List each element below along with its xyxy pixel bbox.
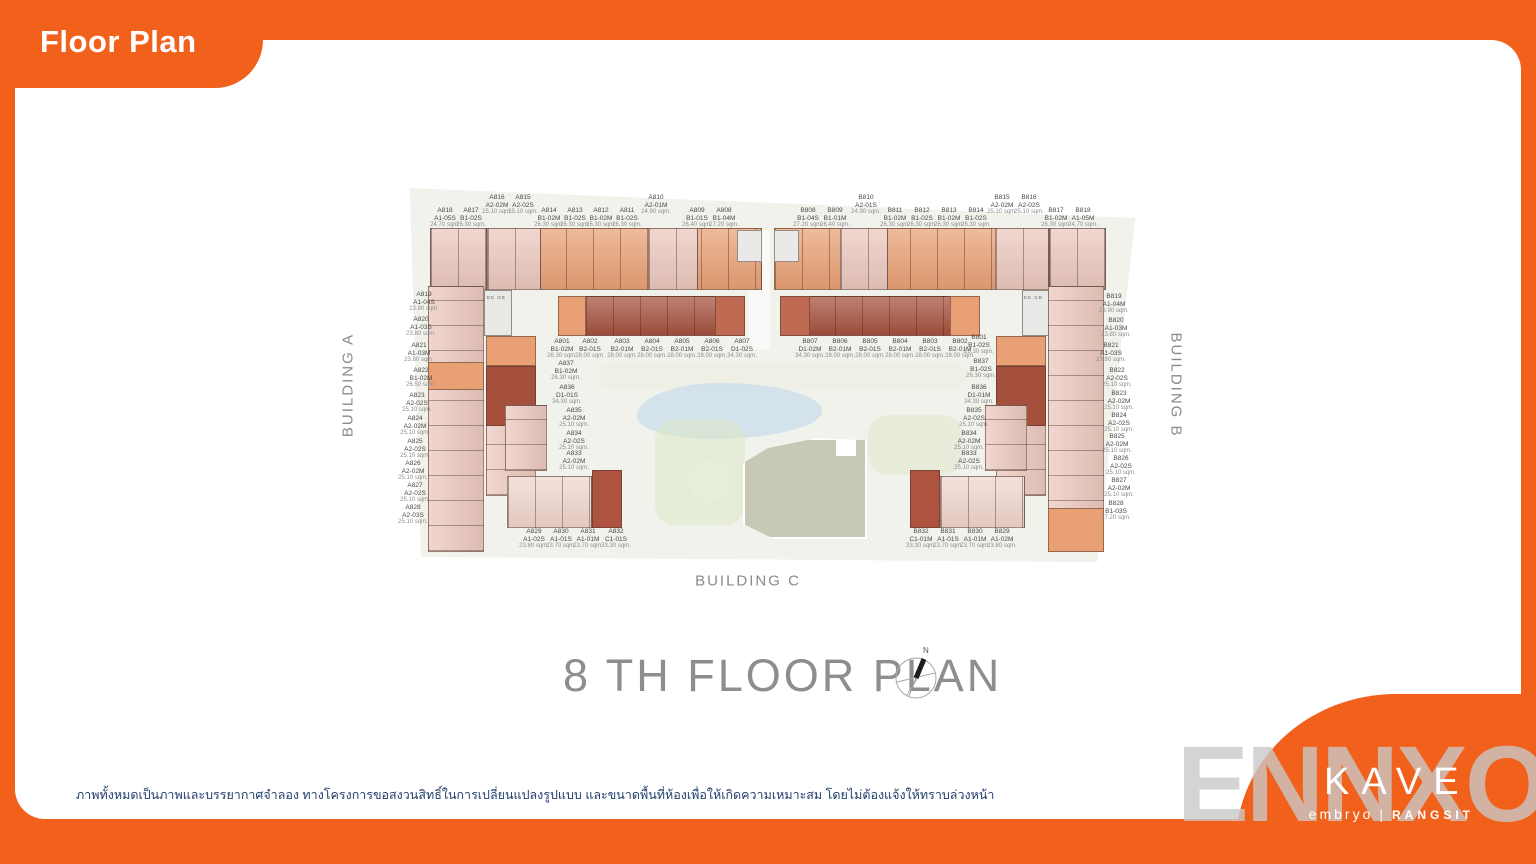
unit-id: B812: [907, 207, 937, 215]
unit-area: 23.90 sqm.: [409, 306, 439, 313]
building-strip: [995, 228, 1049, 290]
unit-area: 23.80 sqm.: [404, 357, 434, 364]
brand-sub-divider: |: [1379, 806, 1386, 822]
unit-area: 28.00 sqm.: [915, 353, 945, 360]
unit-type: B2-01M: [607, 346, 637, 354]
unit-label: A836D1-01S34.30 sqm.: [552, 384, 582, 406]
courtyard-feature: [598, 362, 968, 390]
unit-area: 26.30 sqm.: [551, 375, 581, 382]
unit-label: B824A2-02S25.10 sqm.: [1104, 412, 1134, 434]
unit-area: 25.10 sqm.: [959, 422, 989, 429]
unit-area: 26.40 sqm.: [682, 222, 712, 229]
unit-id: A822: [406, 367, 436, 375]
unit-label: B805B2-01S28.00 sqm.: [855, 338, 885, 360]
unit-label: A831A1-01M23.70 sqm.: [573, 528, 603, 550]
compass-icon: N: [893, 644, 941, 704]
unit-type: B1-02M: [880, 215, 910, 223]
unit-label: A833A2-02M25.10 sqm.: [559, 450, 589, 472]
unit-type: A1-01S: [546, 536, 576, 544]
unit-label: B821A1-03S23.80 sqm.: [1096, 342, 1126, 364]
unit-type: B1-02M: [406, 375, 436, 383]
unit-id: B835: [959, 407, 989, 415]
unit-id: A825: [400, 438, 430, 446]
building-strip: [507, 476, 592, 528]
courtyard-feature: [868, 415, 963, 475]
unit-area: 33.30 sqm.: [906, 543, 936, 550]
unit-type: A2-01M: [641, 202, 671, 210]
unit-label: B812B1-02S26.30 sqm.: [907, 207, 937, 229]
unit-type: B1-02M: [934, 215, 964, 223]
unit-type: A1-01S: [933, 536, 963, 544]
unit-id: A836: [552, 384, 582, 392]
unit-type: B2-01M: [885, 346, 915, 354]
unit-type: A2-03S: [398, 512, 428, 520]
unit-area: 26.50 sqm.: [406, 382, 436, 389]
unit-type: A1-02S: [519, 536, 549, 544]
building-strip: [486, 336, 536, 366]
unit-id: A831: [573, 528, 603, 536]
core-label: EE GB: [1024, 295, 1043, 300]
unit-area: 28.00 sqm.: [637, 353, 667, 360]
unit-id: B811: [880, 207, 910, 215]
unit-type: B1-02S: [966, 366, 996, 374]
unit-type: A2-02S: [402, 400, 432, 408]
unit-id: B817: [1041, 207, 1071, 215]
unit-id: B810: [851, 194, 881, 202]
building-a-label: BUILDING A: [340, 333, 357, 437]
unit-id: B805: [855, 338, 885, 346]
unit-area: 24.90 sqm.: [641, 209, 671, 216]
unit-area: 28.00 sqm.: [667, 353, 697, 360]
unit-label: B808B1-04S27.20 sqm.: [793, 207, 823, 229]
unit-id: A811: [612, 207, 642, 215]
unit-id: B825: [1102, 433, 1132, 441]
unit-label: A803B2-01M28.00 sqm.: [607, 338, 637, 360]
unit-type: A2-02S: [1102, 375, 1132, 383]
unit-id: A834: [559, 430, 589, 438]
building-strip: [1049, 228, 1106, 290]
unit-area: 27.20 sqm.: [709, 222, 739, 229]
unit-area: 27.20 sqm.: [793, 222, 823, 229]
unit-label: B818A1-05M24.70 sqm.: [1068, 207, 1098, 229]
unit-label: A824A2-02M25.10 sqm.: [400, 415, 430, 437]
unit-type: A1-01M: [573, 536, 603, 544]
unit-id: A826: [398, 460, 428, 468]
unit-id: B801: [964, 334, 994, 342]
unit-type: B1-04M: [709, 215, 739, 223]
building-strip: [910, 470, 940, 528]
unit-id: B813: [934, 207, 964, 215]
unit-id: A837: [551, 360, 581, 368]
unit-type: A2-02M: [559, 415, 589, 423]
unit-area: 26.30 sqm.: [1041, 222, 1071, 229]
unit-type: B1-02M: [1041, 215, 1071, 223]
building-strip: [487, 228, 541, 290]
unit-id: B807: [795, 338, 825, 346]
unit-label: B827A2-02M25.10 sqm.: [1104, 477, 1134, 499]
unit-label: A832C1-01S33.30 sqm.: [601, 528, 631, 550]
unit-id: A808: [709, 207, 739, 215]
unit-label: B836D1-01M34.30 sqm.: [964, 384, 994, 406]
unit-label: B807D1-02M34.30 sqm.: [795, 338, 825, 360]
unit-type: B2-01M: [825, 346, 855, 354]
unit-label: B806B2-01M28.00 sqm.: [825, 338, 855, 360]
unit-label: B813B1-02M26.30 sqm.: [934, 207, 964, 229]
unit-type: A2-01S: [851, 202, 881, 210]
unit-area: 26.30 sqm.: [934, 222, 964, 229]
unit-id: B809: [820, 207, 850, 215]
unit-type: B2-01S: [855, 346, 885, 354]
unit-id: A824: [400, 415, 430, 423]
unit-id: B837: [966, 358, 996, 366]
unit-type: A1-03M: [404, 350, 434, 358]
unit-id: A828: [398, 504, 428, 512]
building-strip: [648, 228, 698, 290]
unit-id: B819: [1099, 293, 1129, 301]
unit-type: A2-02M: [559, 458, 589, 466]
unit-label: B804B2-01M28.00 sqm.: [885, 338, 915, 360]
unit-label: B825A2-02M25.10 sqm.: [1102, 433, 1132, 455]
unit-area: 23.80 sqm.: [1101, 332, 1131, 339]
unit-label: B801B1-02S26.30 sqm.: [964, 334, 994, 356]
building-strip: [940, 476, 1025, 528]
unit-area: 23.90 sqm.: [1099, 308, 1129, 315]
unit-area: 25.10 sqm.: [1102, 382, 1132, 389]
unit-type: A2-02S: [400, 490, 430, 498]
unit-id: A804: [637, 338, 667, 346]
disclaimer-text: ภาพทั้งหมดเป็นภาพและบรรยากาศจำลอง ทางโคร…: [76, 785, 994, 805]
unit-type: A1-02M: [987, 536, 1017, 544]
unit-id: B806: [825, 338, 855, 346]
unit-type: B2-01M: [667, 346, 697, 354]
unit-type: A1-05M: [1068, 215, 1098, 223]
unit-area: 34.30 sqm.: [727, 353, 757, 360]
unit-label: A821A1-03M23.80 sqm.: [404, 342, 434, 364]
unit-area: 28.00 sqm.: [697, 353, 727, 360]
unit-id: A830: [546, 528, 576, 536]
building-strip: [985, 405, 1027, 471]
unit-type: D1-01S: [552, 392, 582, 400]
unit-id: A815: [508, 194, 538, 202]
unit-area: 26.30 sqm.: [964, 349, 994, 356]
unit-area: 34.30 sqm.: [964, 399, 994, 406]
unit-label: A805B2-01M28.00 sqm.: [667, 338, 697, 360]
unit-id: B820: [1101, 317, 1131, 325]
unit-type: D1-01M: [964, 392, 994, 400]
unit-type: B1-02M: [547, 346, 577, 354]
unit-id: B832: [906, 528, 936, 536]
unit-id: B827: [1104, 477, 1134, 485]
unit-area: 25.10 sqm.: [559, 422, 589, 429]
unit-area: 23.70 sqm.: [933, 543, 963, 550]
courtyard-feature: [688, 460, 730, 502]
unit-area: 26.30 sqm.: [456, 222, 486, 229]
unit-type: B2-01S: [697, 346, 727, 354]
unit-area: 25.10 sqm.: [1104, 492, 1134, 499]
unit-type: B1-03S: [1101, 508, 1131, 516]
unit-label: B828B1-03S27.20 sqm.: [1101, 500, 1131, 522]
unit-label: A804B2-01S28.00 sqm.: [637, 338, 667, 360]
building-strip: [428, 286, 484, 552]
unit-label: B811B1-02M26.30 sqm.: [880, 207, 910, 229]
unit-area: 28.00 sqm.: [825, 353, 855, 360]
unit-type: A2-02M: [1102, 441, 1132, 449]
building-strip: [505, 405, 547, 471]
building-strip: [592, 470, 622, 528]
unit-area: 24.70 sqm.: [1068, 222, 1098, 229]
unit-label: A807D1-02S34.30 sqm.: [727, 338, 757, 360]
unit-area: 28.00 sqm.: [607, 353, 637, 360]
unit-id: A827: [400, 482, 430, 490]
unit-label: A823A2-02S25.10 sqm.: [402, 392, 432, 414]
unit-area: 34.30 sqm.: [552, 399, 582, 406]
unit-type: B1-04S: [793, 215, 823, 223]
unit-id: A809: [682, 207, 712, 215]
unit-type: A1-03S: [406, 324, 436, 332]
unit-id: B834: [954, 430, 984, 438]
unit-id: A820: [406, 316, 436, 324]
unit-id: A805: [667, 338, 697, 346]
unit-id: B833: [954, 450, 984, 458]
unit-area: 25.10 sqm.: [987, 209, 1017, 216]
unit-type: B2-01S: [575, 346, 605, 354]
unit-type: A2-02M: [400, 423, 430, 431]
unit-id: B804: [885, 338, 915, 346]
unit-area: 26.30 sqm.: [907, 222, 937, 229]
unit-area: 28.00 sqm.: [855, 353, 885, 360]
unit-area: 26.40 sqm.: [820, 222, 850, 229]
unit-area: 28.00 sqm.: [885, 353, 915, 360]
unit-label: B826A2-02S25.10 sqm.: [1106, 455, 1136, 477]
unit-label: B803B2-01S28.00 sqm.: [915, 338, 945, 360]
building-strip: [950, 296, 980, 336]
unit-id: A803: [607, 338, 637, 346]
unit-id: B826: [1106, 455, 1136, 463]
unit-id: A819: [409, 291, 439, 299]
unit-id: A802: [575, 338, 605, 346]
unit-id: A835: [559, 407, 589, 415]
unit-label: B829A1-02M23.80 sqm.: [987, 528, 1017, 550]
unit-label: A810A2-01M24.90 sqm.: [641, 194, 671, 216]
unit-type: D1-02M: [795, 346, 825, 354]
unit-label: B820A1-03M23.80 sqm.: [1101, 317, 1131, 339]
unit-type: B1-02S: [964, 342, 994, 350]
building-strip: [430, 228, 487, 290]
unit-area: 23.80 sqm.: [1096, 357, 1126, 364]
unit-type: A2-02M: [954, 438, 984, 446]
unit-area: 25.10 sqm.: [559, 465, 589, 472]
unit-area: 26.30 sqm.: [966, 373, 996, 380]
unit-area: 23.80 sqm.: [519, 543, 549, 550]
unit-label: A826A2-02M25.10 sqm.: [398, 460, 428, 482]
unit-area: 26.30 sqm.: [612, 222, 642, 229]
unit-type: D1-02S: [727, 346, 757, 354]
unit-type: A1-04M: [1099, 301, 1129, 309]
unit-id: A821: [404, 342, 434, 350]
unit-id: B824: [1104, 412, 1134, 420]
unit-label: B823A2-02M25.10 sqm.: [1104, 390, 1134, 412]
unit-id: B803: [915, 338, 945, 346]
unit-id: B828: [1101, 500, 1131, 508]
unit-label: A837B1-02M26.30 sqm.: [551, 360, 581, 382]
unit-label: A835A2-02M25.10 sqm.: [559, 407, 589, 429]
unit-label: A819A1-04S23.90 sqm.: [409, 291, 439, 313]
building-strip: [715, 296, 745, 336]
unit-label: A808B1-04M27.20 sqm.: [709, 207, 739, 229]
unit-area: 23.80 sqm.: [406, 331, 436, 338]
unit-type: C1-01S: [601, 536, 631, 544]
brand-sub-left: embryo: [1309, 806, 1374, 822]
compass-north-label: N: [923, 646, 929, 655]
unit-type: A1-03S: [1096, 350, 1126, 358]
unit-area: 26.30 sqm.: [880, 222, 910, 229]
unit-type: B2-01S: [915, 346, 945, 354]
unit-label: B817B1-02M26.30 sqm.: [1041, 207, 1071, 229]
building-strip: [996, 336, 1046, 366]
unit-type: B1-02S: [612, 215, 642, 223]
building-strip: [1048, 508, 1104, 552]
unit-label: B831A1-01S23.70 sqm.: [933, 528, 963, 550]
unit-label: A806B2-01S28.00 sqm.: [697, 338, 727, 360]
unit-id: B816: [1014, 194, 1044, 202]
core-label: EE GB: [487, 295, 506, 300]
unit-label: A822B1-02M26.50 sqm.: [406, 367, 436, 389]
unit-label: B833A2-02S25.10 sqm.: [954, 450, 984, 472]
unit-area: 34.30 sqm.: [795, 353, 825, 360]
unit-label: A827A2-02S25.10 sqm.: [400, 482, 430, 504]
unit-area: 33.30 sqm.: [601, 543, 631, 550]
unit-area: 27.20 sqm.: [1101, 515, 1131, 522]
brand-logo: KAVE embryo|RANGSIT: [1309, 761, 1474, 822]
unit-label: A830A1-01S23.70 sqm.: [546, 528, 576, 550]
unit-id: B821: [1096, 342, 1126, 350]
building-strip: [774, 230, 799, 262]
unit-area: 25.10 sqm.: [400, 430, 430, 437]
unit-id: B829: [987, 528, 1017, 536]
building-strip: [428, 362, 484, 390]
unit-label: B816A2-02S25.10 sqm.: [1014, 194, 1044, 216]
unit-label: B830A1-01M23.70 sqm.: [960, 528, 990, 550]
unit-type: C1-01M: [906, 536, 936, 544]
unit-label: A825A2-02S25.10 sqm.: [400, 438, 430, 460]
unit-type: A2-02S: [959, 415, 989, 423]
unit-id: A807: [727, 338, 757, 346]
unit-label: A809B1-01S26.40 sqm.: [682, 207, 712, 229]
page-title: Floor Plan: [40, 24, 197, 60]
unit-label: B809B1-01M26.40 sqm.: [820, 207, 850, 229]
unit-id: B836: [964, 384, 994, 392]
unit-area: 23.80 sqm.: [987, 543, 1017, 550]
unit-id: B822: [1102, 367, 1132, 375]
unit-id: B808: [793, 207, 823, 215]
unit-type: B1-02M: [551, 368, 581, 376]
brand-subtitle: embryo|RANGSIT: [1309, 806, 1474, 822]
unit-label: A820A1-03S23.80 sqm.: [406, 316, 436, 338]
building-strip: [737, 230, 762, 262]
unit-type: B1-02S: [907, 215, 937, 223]
unit-type: A2-02M: [1104, 485, 1134, 493]
brand-name: KAVE: [1309, 761, 1486, 804]
unit-type: A2-02M: [398, 468, 428, 476]
unit-id: A832: [601, 528, 631, 536]
unit-label: B835A2-02S25.10 sqm.: [959, 407, 989, 429]
unit-type: A2-02M: [987, 202, 1017, 210]
unit-type: A1-04S: [409, 299, 439, 307]
unit-label: A801B1-02M26.30 sqm.: [547, 338, 577, 360]
unit-type: B1-01M: [820, 215, 850, 223]
unit-id: A823: [402, 392, 432, 400]
unit-area: 25.10 sqm.: [954, 465, 984, 472]
unit-type: A2-02S: [400, 446, 430, 454]
unit-area: 25.10 sqm.: [398, 519, 428, 526]
building-strip: [780, 296, 810, 336]
unit-id: B823: [1104, 390, 1134, 398]
unit-label: B822A2-02S25.10 sqm.: [1102, 367, 1132, 389]
brand-sub-right: RANGSIT: [1392, 808, 1474, 822]
courtyard-feature: [836, 440, 856, 456]
unit-type: A2-02M: [1104, 398, 1134, 406]
unit-label: B832C1-01M33.30 sqm.: [906, 528, 936, 550]
unit-label: A828A2-03S25.10 sqm.: [398, 504, 428, 526]
unit-label: B819A1-04M23.90 sqm.: [1099, 293, 1129, 315]
building-c-label: BUILDING C: [695, 573, 801, 590]
unit-type: B2-01S: [637, 346, 667, 354]
unit-area: 23.70 sqm.: [546, 543, 576, 550]
unit-type: B1-01S: [682, 215, 712, 223]
building-strip: [840, 228, 888, 290]
unit-label: B815A2-02M25.10 sqm.: [987, 194, 1017, 216]
unit-area: 25.10 sqm.: [1014, 209, 1044, 216]
unit-area: 25.10 sqm.: [402, 407, 432, 414]
unit-label: B810A2-01S24.90 sqm.: [851, 194, 881, 216]
unit-area: 26.30 sqm.: [961, 222, 991, 229]
unit-id: A806: [697, 338, 727, 346]
unit-label: B837B1-02S26.30 sqm.: [966, 358, 996, 380]
unit-id: A801: [547, 338, 577, 346]
building-strip: [558, 296, 586, 336]
unit-type: A2-02S: [954, 458, 984, 466]
unit-id: B818: [1068, 207, 1098, 215]
unit-area: 24.90 sqm.: [851, 209, 881, 216]
unit-type: A2-02S: [1104, 420, 1134, 428]
unit-area: 23.70 sqm.: [960, 543, 990, 550]
unit-label: A811B1-02S26.30 sqm.: [612, 207, 642, 229]
unit-id: B830: [960, 528, 990, 536]
unit-label: A802B2-01S28.00 sqm.: [575, 338, 605, 360]
building-b-label: BUILDING B: [1168, 332, 1185, 437]
unit-type: A2-02S: [1106, 463, 1136, 471]
unit-id: B815: [987, 194, 1017, 202]
unit-type: A2-02S: [1014, 202, 1044, 210]
unit-id: B831: [933, 528, 963, 536]
unit-type: A2-02S: [559, 438, 589, 446]
unit-id: A833: [559, 450, 589, 458]
unit-type: A1-01M: [960, 536, 990, 544]
unit-label: A829A1-02S23.80 sqm.: [519, 528, 549, 550]
unit-type: A1-03M: [1101, 325, 1131, 333]
unit-id: A810: [641, 194, 671, 202]
unit-area: 23.70 sqm.: [573, 543, 603, 550]
unit-id: A829: [519, 528, 549, 536]
